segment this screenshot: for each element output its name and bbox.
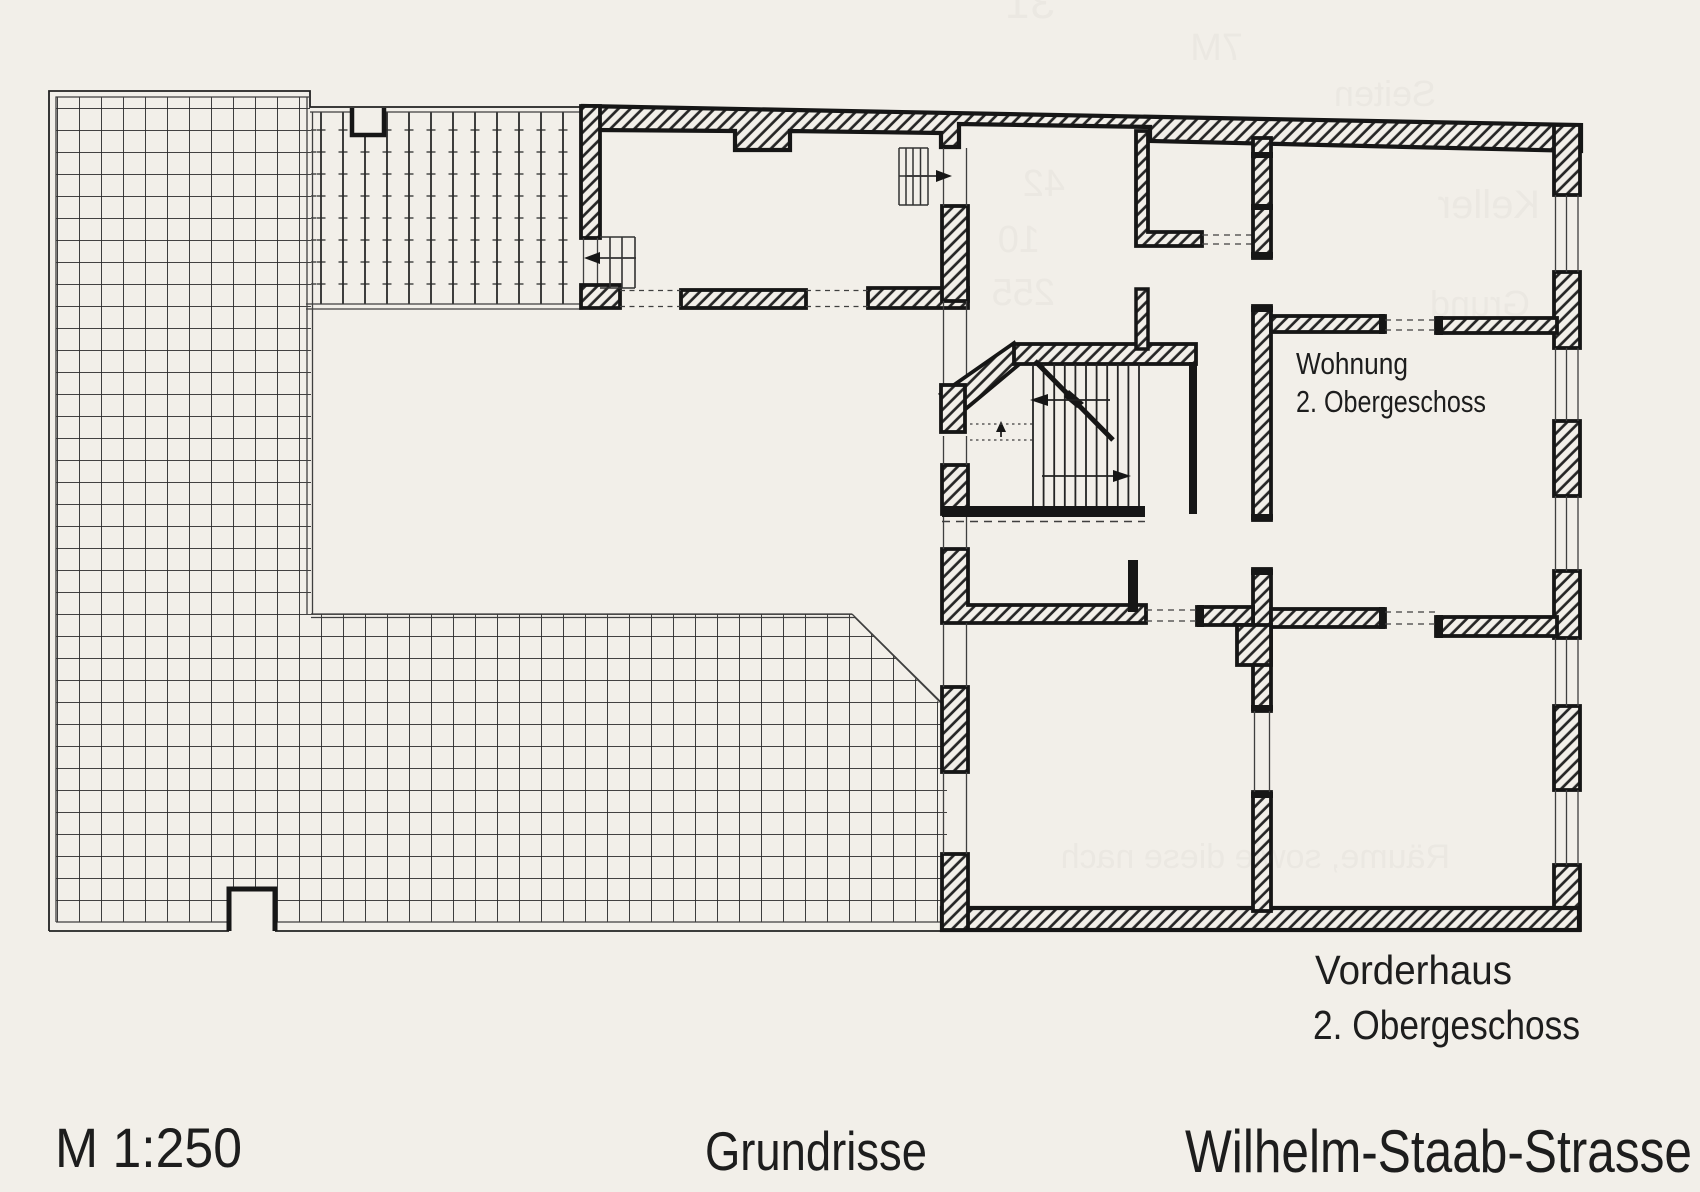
svg-text:255: 255: [992, 272, 1055, 314]
svg-text:Räume, sowie diese nach: Räume, sowie diese nach: [1061, 838, 1450, 876]
svg-text:Grundrisse: Grundrisse: [705, 1120, 927, 1182]
svg-text:2. Obergeschoss: 2. Obergeschoss: [1313, 1002, 1580, 1048]
svg-text:Vorderhaus: Vorderhaus: [1315, 947, 1512, 993]
svg-text:Seiten: Seiten: [1334, 73, 1436, 114]
svg-text:42: 42: [1023, 163, 1065, 205]
svg-text:7M: 7M: [1190, 27, 1243, 69]
svg-text:Keller: Keller: [1438, 183, 1540, 227]
svg-text:31: 31: [1006, 0, 1055, 28]
svg-text:2. Obergeschoss: 2. Obergeschoss: [1296, 384, 1486, 419]
svg-text:Wohnung: Wohnung: [1296, 346, 1408, 381]
svg-text:M 1:250: M 1:250: [55, 1116, 242, 1179]
svg-text:10: 10: [998, 219, 1040, 261]
svg-text:Grund: Grund: [1430, 283, 1530, 324]
svg-text:Wilhelm-Staab-Strasse: Wilhelm-Staab-Strasse: [1185, 1118, 1692, 1185]
